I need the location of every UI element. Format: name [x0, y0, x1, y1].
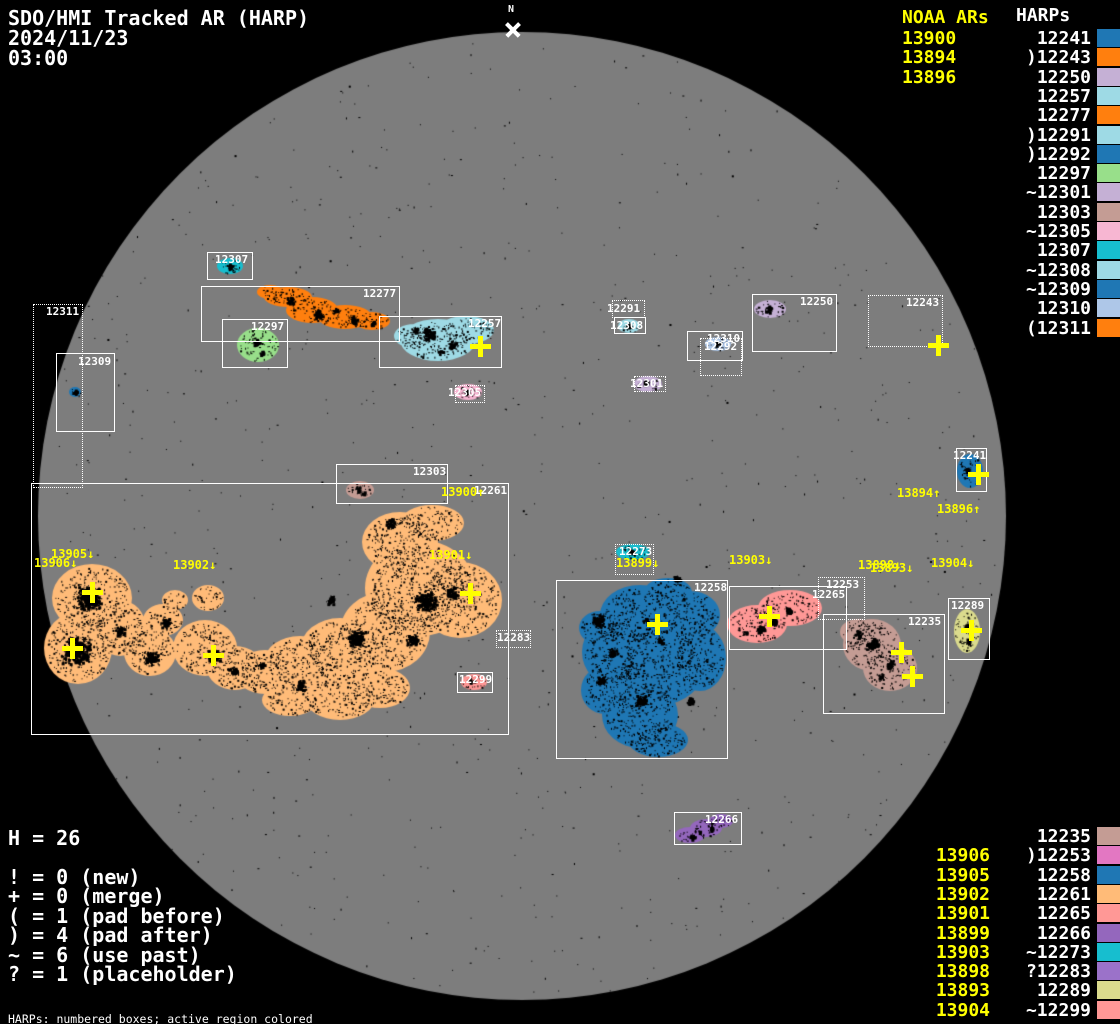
harp-box-label-12311: 12311: [46, 306, 79, 317]
legend-noaa-13904: 13904: [820, 1001, 990, 1020]
legend-harp-12310: 12310: [1000, 299, 1091, 318]
time-label: 03:00: [8, 48, 68, 68]
legend-noaa-13900: 13900: [902, 29, 956, 48]
harp-box-label-12291: 12291: [607, 303, 640, 314]
legend-color-swatch: [1097, 981, 1120, 999]
harp-box-label-12299: 12299: [459, 674, 492, 685]
legend-color-swatch: [1097, 846, 1120, 864]
legend-harp-12266: 12266: [1000, 924, 1091, 943]
harp-box-12311: [33, 304, 83, 488]
harps-header: HARPs: [1016, 6, 1070, 25]
harp-box-12235: [823, 614, 945, 714]
noaa-ar-label-13902: 13902↓: [173, 559, 216, 571]
footnotes: HARPs: numbered boxes; active region col…: [8, 988, 410, 1024]
legend-noaa-13898: 13898: [820, 962, 990, 981]
noaa-cross-icon: [928, 335, 949, 356]
legend-color-swatch: [1097, 280, 1120, 298]
noaa-cross-icon: [961, 620, 982, 641]
noaa-cross-icon: [759, 606, 780, 627]
harp-box-label-12266: 12266: [705, 814, 738, 825]
legend-color-swatch: [1097, 68, 1120, 86]
date-label: 2024/11/23: [8, 28, 128, 48]
legend-color-swatch: [1097, 145, 1120, 163]
noaa-ar-label-13894: 13894↑: [897, 487, 940, 499]
noaa-cross-icon: [203, 645, 224, 666]
harp-box-label-12243: 12243: [906, 297, 939, 308]
harp-box-label-12297: 12297: [251, 321, 284, 332]
harp-count: H = 26: [8, 828, 80, 848]
legend-harp-12292: )12292: [1000, 145, 1091, 164]
noaa-ar-label-13900: 13900↑: [441, 486, 484, 498]
noaa-ar-label-13899: 13899↓: [616, 557, 659, 569]
noaa-cross-icon: [647, 614, 668, 635]
legend-harp-12308: ~12308: [1000, 261, 1091, 280]
legend-color-swatch: [1097, 261, 1120, 279]
harp-box-label-12277: 12277: [363, 288, 396, 299]
legend-noaa-13893: 13893: [820, 981, 990, 1000]
legend-color-swatch: [1097, 29, 1120, 47]
noaa-cross-icon: [82, 582, 103, 603]
noaa-cross-icon: [470, 336, 491, 357]
legend-harp-12297: 12297: [1000, 164, 1091, 183]
harp-box-label-12241: 12241: [953, 450, 986, 461]
harp-box-label-12303: 12303: [413, 466, 446, 477]
legend-color-swatch: [1097, 183, 1120, 201]
legend-color-swatch: [1097, 299, 1120, 317]
harp-box-label-12235: 12235: [908, 616, 941, 627]
legend-harp-12261: 12261: [1000, 885, 1091, 904]
harp-box-label-12265: 12265: [812, 589, 845, 600]
legend-color-swatch: [1097, 1001, 1120, 1019]
noaa-cross-icon: [902, 666, 923, 687]
legend-harp-12250: 12250: [1000, 68, 1091, 87]
noaa-ar-label-13906: 13906↓: [34, 557, 77, 569]
legend-harp-12283: ?12283: [1000, 962, 1091, 981]
harp-box-12261: [31, 483, 509, 735]
harp-viewer: SDO/HMI Tracked AR (HARP) 2024/11/23 03:…: [0, 0, 1120, 1024]
legend-harp-12258: 12258: [1000, 866, 1091, 885]
legend-harp-12301: ~12301: [1000, 183, 1091, 202]
page-title: SDO/HMI Tracked AR (HARP): [8, 8, 309, 28]
legend-harp-12291: )12291: [1000, 126, 1091, 145]
legend-harp-12243: )12243: [1000, 48, 1091, 67]
legend-color-swatch: [1097, 904, 1120, 922]
noaa-cross-icon: [891, 642, 912, 663]
legend-harp-12273: ~12273: [1000, 943, 1091, 962]
legend-harp-12257: 12257: [1000, 87, 1091, 106]
legend-color-swatch: [1097, 866, 1120, 884]
noaa-cross-icon: [62, 638, 83, 659]
legend-color-swatch: [1097, 943, 1120, 961]
legend-harp-12289: 12289: [1000, 981, 1091, 1000]
noaa-ars-header: NOAA ARs: [902, 8, 989, 27]
legend-color-swatch: [1097, 222, 1120, 240]
legend-color-swatch: [1097, 203, 1120, 221]
noaa-cross-icon: [460, 583, 481, 604]
harp-box-label-12283: 12283: [497, 632, 530, 643]
noaa-ar-label-13904: 13904↓: [931, 557, 974, 569]
legend-noaa-13903: 13903: [820, 943, 990, 962]
harp-box-label-12289: 12289: [951, 600, 984, 611]
stat-line: ? = 1 (placeholder): [8, 965, 237, 984]
harp-box-label-12308: 12308: [610, 320, 643, 331]
legend-color-swatch: [1097, 87, 1120, 105]
harp-box-label-12258: 12258: [694, 582, 727, 593]
legend-noaa-13899: 13899: [820, 924, 990, 943]
legend-harp-12303: 12303: [1000, 203, 1091, 222]
legend-noaa-13905: 13905: [820, 866, 990, 885]
north-cross-icon: [504, 21, 522, 39]
legend-harp-12277: 12277: [1000, 106, 1091, 125]
legend-noaa-13896: 13896: [902, 68, 956, 87]
legend-color-swatch: [1097, 962, 1120, 980]
legend-harp-12241: 12241: [1000, 29, 1091, 48]
footnote-harps: HARPs: numbered boxes; active region col…: [8, 1013, 410, 1024]
legend-harp-12305: ~12305: [1000, 222, 1091, 241]
legend-color-swatch: [1097, 885, 1120, 903]
legend-harp-12235: 12235: [1000, 827, 1091, 846]
legend-color-swatch: [1097, 164, 1120, 182]
legend-noaa-13901: 13901: [820, 904, 990, 923]
legend-harp-12265: 12265: [1000, 904, 1091, 923]
legend-noaa-13902: 13902: [820, 885, 990, 904]
legend-color-swatch: [1097, 48, 1120, 66]
legend-color-swatch: [1097, 106, 1120, 124]
legend-color-swatch: [1097, 126, 1120, 144]
stats-legend: ! = 0 (new)+ = 0 (merge)( = 1 (pad befor…: [8, 868, 237, 984]
legend-harp-12253: )12253: [1000, 846, 1091, 865]
legend-noaa-13906: 13906: [820, 846, 990, 865]
noaa-ar-label-13901: 13901↓: [429, 549, 472, 561]
legend-harp-12299: ~12299: [1000, 1001, 1091, 1020]
noaa-ar-label-13898: 13898↓: [858, 559, 901, 571]
harp-box-label-12301: 12301: [630, 378, 663, 389]
noaa-ar-label-13903: 13903↓: [729, 554, 772, 566]
noaa-ar-label-13896: 13896↑: [937, 503, 980, 515]
legend-color-swatch: [1097, 924, 1120, 942]
legend-color-swatch: [1097, 827, 1120, 845]
harp-box-label-12257: 12257: [468, 318, 501, 329]
harp-box-12258: [556, 580, 728, 759]
legend-harp-12311: (12311: [1000, 319, 1091, 338]
legend-color-swatch: [1097, 241, 1120, 259]
harp-box-label-12292: 12292: [704, 341, 737, 352]
harp-box-label-12307: 12307: [215, 254, 248, 265]
legend-noaa-13894: 13894: [902, 48, 956, 67]
legend-harp-12307: 12307: [1000, 241, 1091, 260]
harp-box-label-12305: 12305: [448, 387, 481, 398]
north-label: N: [508, 5, 514, 15]
legend-color-swatch: [1097, 319, 1120, 337]
harp-box-label-12250: 12250: [800, 296, 833, 307]
noaa-cross-icon: [968, 464, 989, 485]
legend-harp-12309: ~12309: [1000, 280, 1091, 299]
